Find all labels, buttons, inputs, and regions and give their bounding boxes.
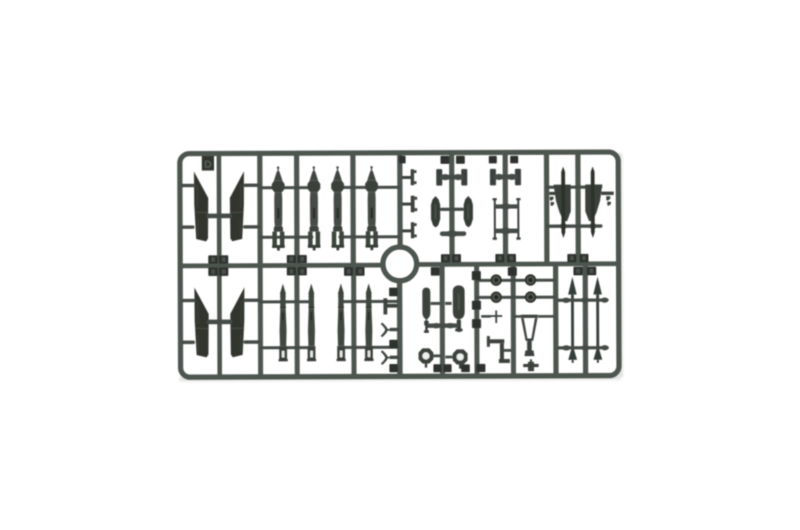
- svg-text:D: D: [204, 159, 212, 171]
